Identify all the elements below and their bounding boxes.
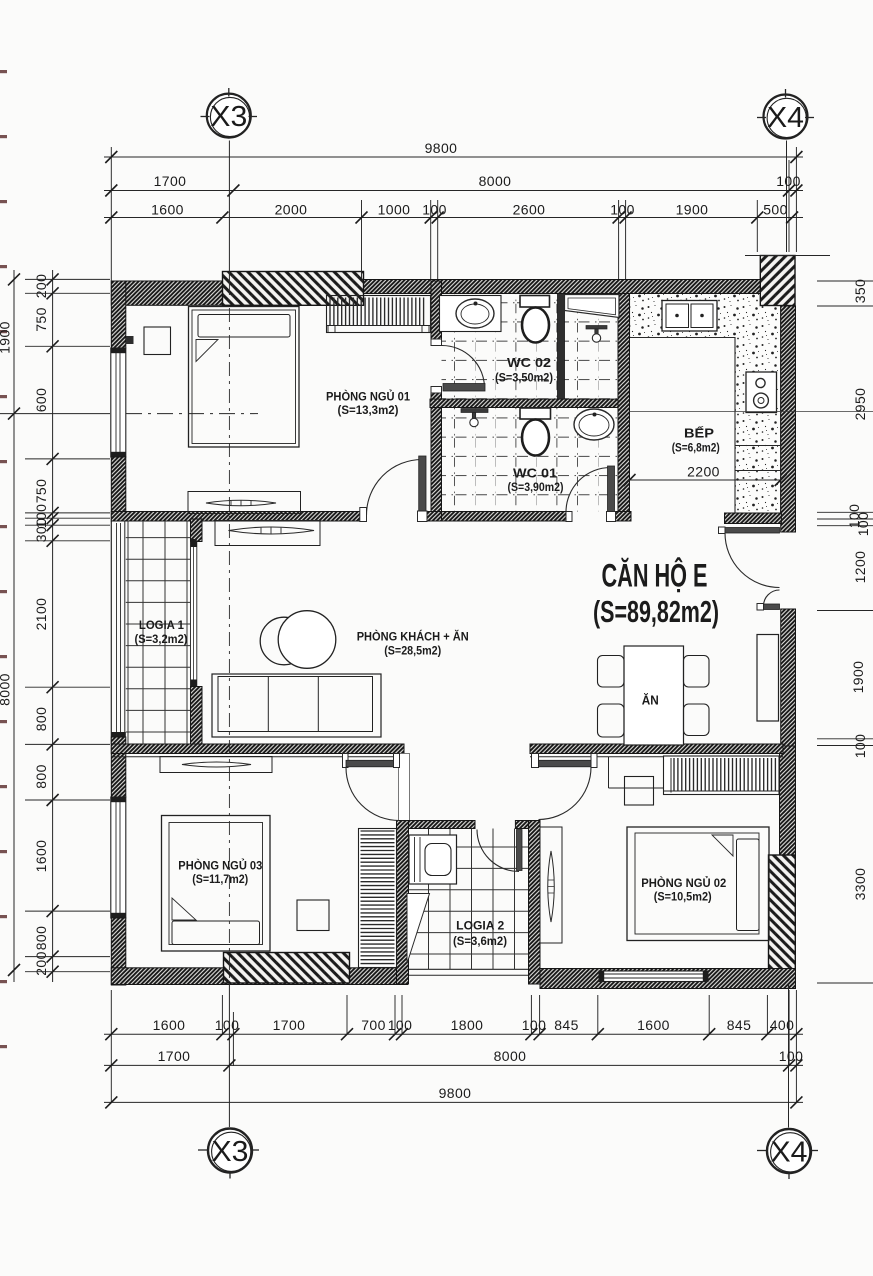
svg-text:(S=3,2m2): (S=3,2m2)	[135, 632, 188, 646]
svg-text:500: 500	[763, 202, 788, 218]
svg-text:800: 800	[33, 707, 49, 732]
svg-text:100: 100	[776, 173, 801, 189]
svg-text:800: 800	[33, 764, 49, 789]
svg-text:(S=6,8m2): (S=6,8m2)	[672, 441, 720, 455]
svg-text:8000: 8000	[479, 173, 512, 189]
svg-text:100: 100	[215, 1017, 240, 1033]
svg-text:(S=89,82m2): (S=89,82m2)	[593, 594, 719, 629]
svg-text:100: 100	[388, 1017, 413, 1033]
svg-text:100: 100	[779, 1048, 804, 1064]
svg-text:CĂN HỘ E: CĂN HỘ E	[602, 558, 708, 594]
svg-text:WC 02: WC 02	[507, 356, 551, 370]
svg-text:LOGIA 2: LOGIA 2	[456, 919, 504, 933]
svg-text:1700: 1700	[154, 173, 187, 189]
svg-text:1000: 1000	[378, 202, 411, 218]
svg-text:(S=10,5m2): (S=10,5m2)	[654, 890, 712, 904]
svg-text:1900: 1900	[676, 202, 709, 218]
svg-text:1600: 1600	[151, 202, 184, 218]
svg-text:X4: X4	[767, 102, 804, 134]
svg-text:750: 750	[33, 307, 49, 332]
svg-text:8000: 8000	[0, 673, 13, 706]
svg-text:600: 600	[33, 388, 49, 413]
svg-text:(S=3,6m2): (S=3,6m2)	[453, 934, 507, 948]
svg-text:3300: 3300	[852, 868, 868, 901]
svg-text:(S=28,5m2): (S=28,5m2)	[384, 644, 441, 658]
svg-text:800: 800	[33, 926, 49, 951]
svg-text:2000: 2000	[275, 202, 308, 218]
svg-text:9800: 9800	[425, 140, 458, 156]
svg-text:(S=3,50m2): (S=3,50m2)	[495, 371, 553, 385]
svg-text:750: 750	[33, 479, 49, 504]
svg-text:PHÒNG KHÁCH + ĂN: PHÒNG KHÁCH + ĂN	[357, 629, 469, 644]
svg-text:2100: 2100	[33, 598, 49, 631]
svg-text:100: 100	[422, 202, 447, 218]
svg-text:WC 01: WC 01	[513, 467, 557, 481]
svg-text:X3: X3	[210, 101, 247, 133]
svg-text:(S=11,7m2): (S=11,7m2)	[192, 872, 248, 886]
svg-text:100: 100	[522, 1017, 547, 1033]
svg-text:1600: 1600	[637, 1017, 670, 1033]
svg-text:2200: 2200	[687, 464, 720, 480]
svg-text:400: 400	[770, 1017, 795, 1033]
svg-text:8000: 8000	[494, 1048, 527, 1064]
svg-text:1600: 1600	[33, 840, 49, 873]
svg-text:1900: 1900	[850, 661, 866, 694]
svg-text:9800: 9800	[439, 1085, 472, 1101]
svg-text:100: 100	[852, 734, 868, 759]
svg-text:X4: X4	[771, 1137, 808, 1169]
svg-text:LOGIA 1: LOGIA 1	[139, 618, 184, 632]
svg-text:1800: 1800	[451, 1017, 484, 1033]
svg-text:1700: 1700	[158, 1048, 191, 1064]
svg-text:300: 300	[33, 518, 49, 543]
svg-text:BẾP: BẾP	[684, 426, 714, 441]
svg-text:2950: 2950	[852, 388, 868, 421]
svg-text:350: 350	[852, 279, 868, 304]
svg-text:X3: X3	[212, 1136, 249, 1168]
svg-text:200: 200	[33, 274, 49, 299]
svg-text:PHÒNG NGỦ 03: PHÒNG NGỦ 03	[178, 858, 262, 873]
svg-text:PHÒNG NGỦ 01: PHÒNG NGỦ 01	[326, 389, 410, 404]
svg-text:(S=13,3m2): (S=13,3m2)	[338, 403, 399, 417]
svg-text:2600: 2600	[513, 202, 546, 218]
svg-text:1600: 1600	[153, 1017, 186, 1033]
svg-text:PHÒNG NGỦ 02: PHÒNG NGỦ 02	[641, 875, 726, 890]
svg-text:845: 845	[554, 1017, 579, 1033]
svg-text:(S=3,90m2): (S=3,90m2)	[508, 480, 564, 494]
svg-text:700: 700	[361, 1017, 386, 1033]
svg-text:100: 100	[855, 512, 871, 537]
svg-text:ĂN: ĂN	[642, 693, 659, 708]
svg-text:100: 100	[610, 202, 635, 218]
svg-text:1900: 1900	[0, 321, 13, 354]
svg-text:845: 845	[727, 1017, 752, 1033]
svg-text:1200: 1200	[852, 551, 868, 584]
svg-text:1700: 1700	[273, 1017, 306, 1033]
